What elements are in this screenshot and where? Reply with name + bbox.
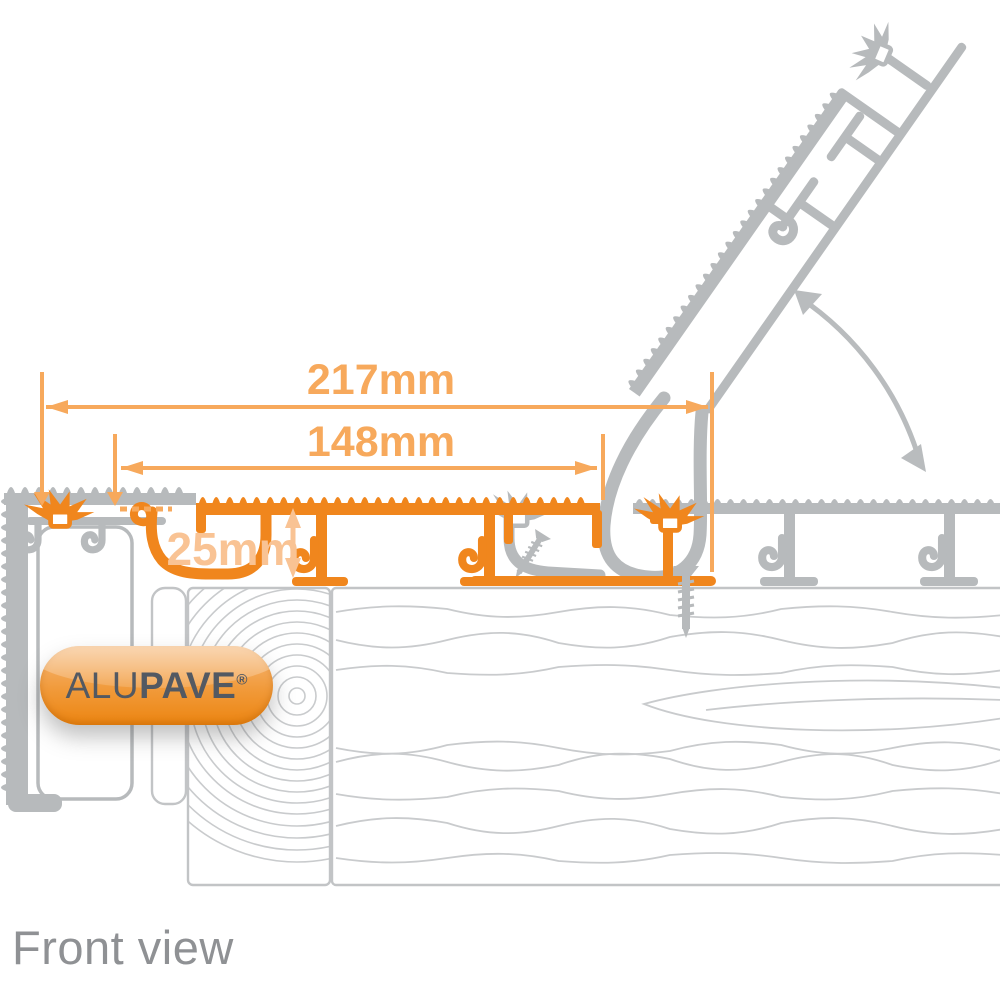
board-foot (292, 577, 348, 586)
grain-line (336, 632, 1000, 648)
alupave-logo: ALUPAVE® (40, 646, 273, 725)
dimension-25mm: 25mm (167, 508, 301, 578)
fixing-clip-icon (842, 13, 900, 88)
orange-board-right-edge (592, 510, 602, 548)
orange-board-serrated-top (196, 497, 600, 515)
grain-line (336, 853, 1000, 863)
grain-line (336, 742, 1000, 755)
grain-line (336, 788, 1000, 799)
profile-cross-section-drawing: 217mm 148mm 25mm (0, 0, 1000, 1000)
board-foot (920, 577, 978, 586)
dim-148-label: 148mm (307, 418, 455, 466)
hook-profile-icon (462, 540, 482, 569)
hook-profile-icon (922, 538, 942, 567)
tilted-deck-board (484, 0, 968, 583)
diagram-canvas: 217mm 148mm 25mm ALUPAVE® Front view (0, 0, 1000, 1000)
dim-217-label: 217mm (307, 356, 455, 404)
grain-line (336, 606, 1000, 617)
dim-25-label: 25mm (167, 523, 300, 575)
tilted-board-end-curl (604, 398, 702, 577)
left-board-serrated-top (4, 487, 196, 505)
grain-dart-inner (706, 698, 1000, 710)
hook-profile-icon (762, 538, 782, 567)
fascia-foot (8, 794, 62, 812)
board-joint-edge (504, 510, 513, 544)
alupave-logo-text: ALUPAVE® (66, 667, 248, 704)
grain-line (336, 665, 1000, 675)
grain-line (336, 818, 1000, 834)
grain-line (336, 754, 1000, 771)
rotation-arrow-icon (794, 290, 926, 472)
board-foot (760, 577, 818, 586)
timber-joist-outline (332, 588, 1000, 885)
view-caption: Front view (12, 920, 234, 975)
timber-joist-grain (336, 606, 1000, 863)
tilted-board-serrated-top (625, 87, 849, 396)
grain-dart (644, 681, 1000, 731)
